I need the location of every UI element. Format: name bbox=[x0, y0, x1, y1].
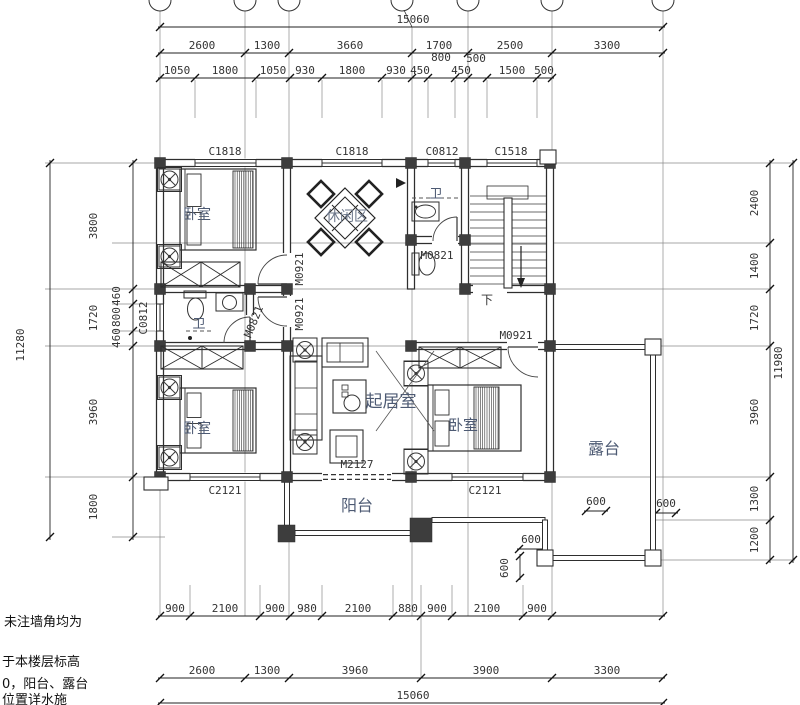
dims-top-row3-0: 1050 bbox=[164, 64, 191, 77]
dims-small-3: 600 bbox=[498, 558, 511, 578]
dims-left-sub-1: 800 bbox=[110, 307, 123, 327]
dims-left-col-2: 3960 bbox=[87, 399, 100, 426]
rooms-bath_top: 卫 bbox=[429, 187, 442, 202]
floor-plan-page: 1506026001300366017002500330080050010501… bbox=[0, 0, 800, 705]
openings-c1818_a: C1818 bbox=[208, 145, 241, 158]
rooms-bedroom2: 卧室 bbox=[448, 416, 478, 434]
windows bbox=[156, 159, 538, 482]
dims-top-overall: 15060 bbox=[396, 13, 429, 26]
dims-right-col-5: 1200 bbox=[748, 527, 761, 554]
dims-right-col-1: 1400 bbox=[748, 253, 761, 280]
rooms-balcony: 阳台 bbox=[341, 496, 373, 515]
dims-left-overall: 11280 bbox=[14, 328, 27, 361]
dims-left-sub-0: 460 bbox=[110, 286, 123, 306]
dims-right-col-0: 2400 bbox=[748, 190, 761, 217]
dims-bottom-row1-2: 900 bbox=[265, 602, 285, 615]
dims-small-2: 600 bbox=[521, 533, 541, 546]
labels: 1506026001300366017002500330080050010501… bbox=[2, 13, 785, 705]
openings-m0921_b: M0921 bbox=[293, 297, 306, 330]
dims-top-row2-2: 3660 bbox=[337, 39, 364, 52]
dims-bottom-row1-6: 900 bbox=[427, 602, 447, 615]
dims-bottom-row1-0: 900 bbox=[165, 602, 185, 615]
dims-left-col-1: 1720 bbox=[87, 305, 100, 332]
dims-bottom-row2-3: 3900 bbox=[473, 664, 500, 677]
dims-top-row2-1: 1300 bbox=[254, 39, 281, 52]
notes-line4: 位置详水施 bbox=[2, 693, 67, 705]
floor-plan-canvas: 1506026001300366017002500330080050010501… bbox=[0, 0, 800, 705]
dims-bottom-overall: 15060 bbox=[396, 689, 429, 702]
dims-bottom-row2-2: 3960 bbox=[342, 664, 369, 677]
rooms-bedroom3: 卧室 bbox=[183, 420, 211, 437]
dims-right-col-3: 3960 bbox=[748, 399, 761, 426]
openings-c0812_top: C0812 bbox=[425, 145, 458, 158]
dims-top-row3-6: 450 bbox=[410, 64, 430, 77]
dims-top-row2-0: 2600 bbox=[189, 39, 216, 52]
dims-small-0: 600 bbox=[586, 495, 606, 508]
dims-left-sub-2: 460 bbox=[110, 328, 123, 348]
dims-top-row3-2: 1050 bbox=[260, 64, 287, 77]
rooms-terrace: 露台 bbox=[588, 439, 620, 458]
dims-top-row2-5: 3300 bbox=[594, 39, 621, 52]
dims-left-col-3: 1800 bbox=[87, 494, 100, 521]
dims-bottom-row1-3: 980 bbox=[297, 602, 317, 615]
notes-line3: 0，阳台、露台 bbox=[2, 677, 88, 692]
rooms-bath_left: 卫 bbox=[192, 317, 205, 332]
rooms-bedroom1: 卧室 bbox=[183, 206, 211, 223]
openings-c1518: C1518 bbox=[494, 145, 527, 158]
openings-c0812_left: C0812 bbox=[137, 301, 150, 334]
dims-left-col-0: 3800 bbox=[87, 213, 100, 240]
dims-top-row3-1: 1800 bbox=[212, 64, 239, 77]
openings-c2121_left: C2121 bbox=[208, 484, 241, 497]
openings-m0921_c: M0921 bbox=[499, 329, 532, 342]
dims-bottom-row1-4: 2100 bbox=[345, 602, 372, 615]
openings-c2121_right: C2121 bbox=[468, 484, 501, 497]
openings-c1818_b: C1818 bbox=[335, 145, 368, 158]
dims-right-col-2: 1720 bbox=[748, 305, 761, 332]
dims-bottom-row1-8: 900 bbox=[527, 602, 547, 615]
dims-top-row3-8: 1500 bbox=[499, 64, 526, 77]
dims-bottom-row2-1: 1300 bbox=[254, 664, 281, 677]
dims-top-row3-9: 500 bbox=[534, 64, 554, 77]
dims-top-row3-4: 1800 bbox=[339, 64, 366, 77]
dims-small-1: 600 bbox=[656, 497, 676, 510]
dims-bottom-row1-5: 880 bbox=[398, 602, 418, 615]
notes-line1: 未注墙角均为 bbox=[4, 615, 82, 630]
notes-line2: 于本楼层标高 bbox=[2, 654, 80, 670]
staircase bbox=[470, 186, 546, 288]
dims-bottom-row1-1: 2100 bbox=[212, 602, 239, 615]
dims-bottom-row1-7: 2100 bbox=[474, 602, 501, 615]
rooms-leisure: 休闲区 bbox=[326, 209, 368, 225]
openings-m0821_top: M0821 bbox=[420, 249, 453, 262]
rooms-living: 起居室 bbox=[366, 392, 417, 412]
rooms-stair_down: 下 bbox=[481, 293, 493, 307]
dims-top-row2_sub-0: 800 bbox=[431, 51, 451, 64]
dims-bottom-row2-0: 2600 bbox=[189, 664, 216, 677]
dims-top-row3-5: 930 bbox=[386, 64, 406, 77]
dims-top-row3-7: 450 bbox=[451, 64, 471, 77]
dims-right-col-4: 1300 bbox=[748, 486, 761, 513]
dims-bottom-row2-4: 3300 bbox=[594, 664, 621, 677]
openings-m2127: M2127 bbox=[340, 458, 373, 471]
dims-right-overall: 11980 bbox=[772, 346, 785, 379]
dims-top-row2-4: 2500 bbox=[497, 39, 524, 52]
dims-top-row3-3: 930 bbox=[295, 64, 315, 77]
openings-m0921_a: M0921 bbox=[293, 252, 306, 285]
